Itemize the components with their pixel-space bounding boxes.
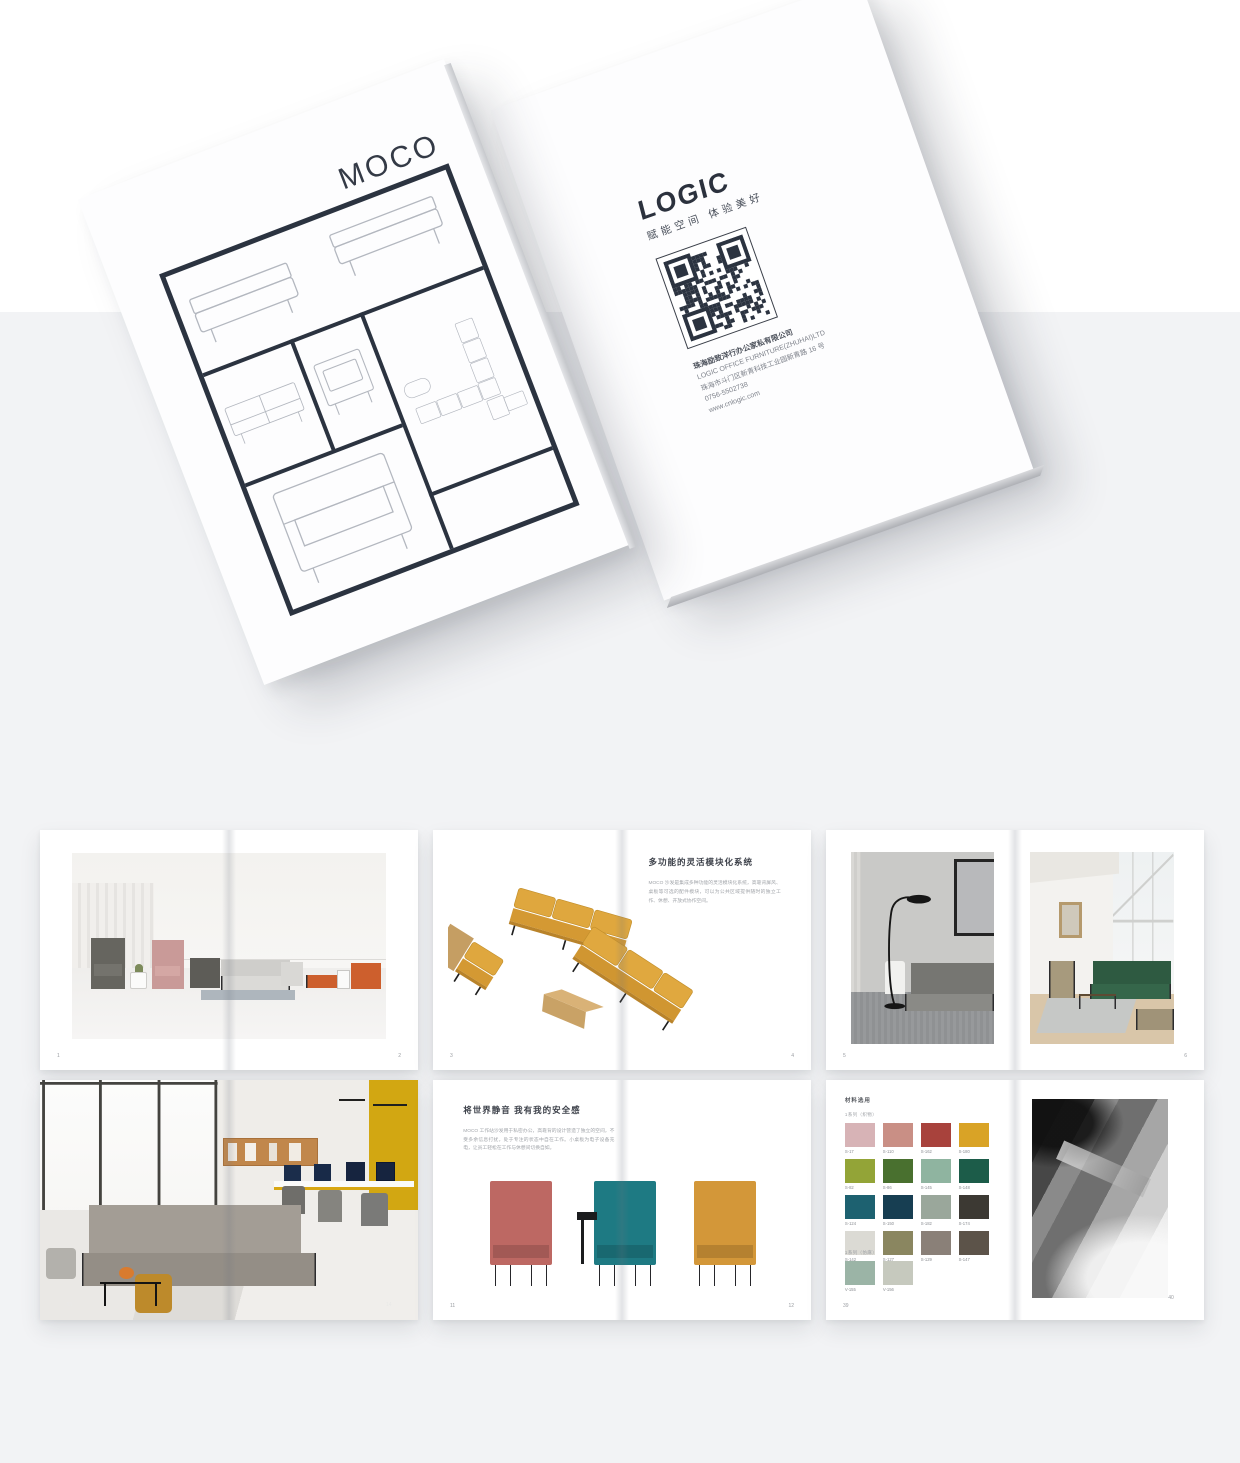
pink-highback-chair (152, 940, 183, 988)
swatch-code: S-145 (921, 1185, 951, 1190)
monitor (346, 1162, 365, 1181)
swatch-group-label: 1系列（仿麻） (845, 1250, 877, 1256)
coffee-table (1079, 994, 1116, 1009)
page-number: 2 (398, 1053, 401, 1059)
charcoal-sofa (190, 958, 220, 988)
office-chair (318, 1190, 343, 1221)
spread-interior-scenes: 5 6 (826, 830, 1204, 1070)
brochure-mockup-hero: LOGIC 赋能空间 体验美好 (0, 0, 1240, 800)
chair-seat (493, 1245, 549, 1258)
spread-modular-system: 多功能的灵活模块化系统 MOCO 沙发是集成多种功能的灵活模块化系统，高靠背屏风… (433, 830, 811, 1070)
small-table (337, 970, 350, 989)
swatch-chip (883, 1261, 913, 1285)
fabric-swatch: S-129 (921, 1231, 951, 1262)
swatch-code: S-162 (921, 1149, 951, 1154)
swatch-chip (845, 1261, 875, 1285)
swatch-chip (883, 1231, 913, 1255)
page-number: 6 (1184, 1053, 1187, 1059)
swatch-code: S-150 (883, 1221, 913, 1226)
materials-header: 材料选用 (845, 1096, 871, 1104)
spread-body-text: MOCO 工作站沙发用于私密办公，高靠背的设计营造了独立的空间，不受多余信息打扰… (463, 1128, 614, 1154)
white-armchair (281, 962, 303, 986)
coffee-table-top (100, 1282, 160, 1285)
fabric-swatch: V-155 (845, 1261, 875, 1292)
craft-hands-photo (1032, 1099, 1168, 1298)
fabric-swatch: S-182 (921, 1195, 951, 1226)
ceiling-rod (339, 1099, 365, 1101)
swatch-chip (883, 1195, 913, 1219)
chair-leg (699, 1265, 701, 1286)
page-gutter (1008, 830, 1022, 1070)
dark-chair-seat (94, 964, 122, 975)
back-cover-content: LOGIC 赋能空间 体验美好 (634, 116, 941, 416)
fabric-swatch: S-162 (921, 1123, 951, 1154)
framed-art (954, 859, 994, 936)
qr-code (663, 234, 770, 341)
fabric-swatch: S-180 (959, 1123, 989, 1154)
beige-bench (1136, 1009, 1173, 1030)
swatch-code: S-82 (845, 1185, 875, 1190)
chair-leg (714, 1265, 716, 1286)
swatch-chip (921, 1123, 951, 1147)
table-leg (104, 1283, 106, 1306)
page-number: 13 (66, 1302, 72, 1308)
swatch-chip (845, 1159, 875, 1183)
page-number: 3 (450, 1053, 453, 1059)
swatch-code: S-147 (959, 1257, 989, 1262)
gray-pouf (46, 1248, 76, 1279)
swatch-grid: S-17 S-110 S-162 S-180 S-82 S-86 S-145 S… (845, 1123, 989, 1262)
swatch-code: V-155 (845, 1287, 875, 1292)
page-number: 11 (450, 1303, 455, 1309)
spread-office-lounge: 13 14 (40, 1080, 418, 1320)
swatch-code: S-129 (921, 1257, 951, 1262)
spread-heading: 多功能的灵活模块化系统 (648, 856, 788, 868)
page-number: 14 (386, 1302, 392, 1308)
page-number: 5 (843, 1053, 846, 1059)
swatch-code: S-110 (883, 1149, 913, 1154)
fabric-swatch: S-124 (845, 1195, 875, 1226)
books (269, 1143, 277, 1162)
page-number: 39 (843, 1303, 849, 1309)
swatch-chip (959, 1159, 989, 1183)
mustard-pouf (135, 1274, 173, 1312)
chair-leg (635, 1265, 637, 1286)
swatch-chip (921, 1231, 951, 1255)
chair-leg (599, 1265, 601, 1286)
page-gutter (615, 1080, 629, 1320)
swatch-group-label: 1系列（织物） (845, 1112, 877, 1118)
swatch-chip (845, 1195, 875, 1219)
gray-sofa-lamp-photo (851, 852, 995, 1044)
swatch-chip (959, 1231, 989, 1255)
books (289, 1143, 301, 1162)
highback-chair-mustard (694, 1181, 756, 1287)
side-table (130, 972, 147, 989)
page-number: 1 (57, 1053, 60, 1059)
chair-seat (697, 1245, 753, 1258)
fabric-swatch: S-110 (883, 1123, 913, 1154)
page-gutter (1008, 1080, 1022, 1320)
books (245, 1143, 256, 1162)
fabric-swatch: S-174 (959, 1195, 989, 1226)
page-gutter (222, 1080, 236, 1320)
green-sofa-attic-photo (1030, 852, 1174, 1044)
swatch-code: S-182 (921, 1221, 951, 1226)
pink-chair-seat (155, 966, 180, 975)
chair-leg (495, 1265, 497, 1286)
orange-loveseat (351, 963, 381, 988)
swatch-code: S-86 (883, 1185, 913, 1190)
chair-leg (650, 1265, 652, 1286)
page-gutter (615, 830, 629, 1070)
swatch-code: S-174 (959, 1221, 989, 1226)
swatch-chip (959, 1195, 989, 1219)
qr-code-box (655, 227, 778, 350)
presentation-canvas: LOGIC 赋能空间 体验美好 (0, 0, 1240, 1463)
fabric-swatch: S-127 (883, 1231, 913, 1262)
monitor (376, 1162, 395, 1181)
swatch-code: S-124 (845, 1221, 875, 1226)
swatch-code: V-156 (883, 1287, 913, 1292)
tablet-table (577, 1212, 597, 1219)
wall-shelf (223, 1138, 318, 1167)
floor-lamp (862, 863, 948, 1032)
highback-chair-rose (490, 1181, 552, 1287)
spread-showroom: 1 2 (40, 830, 418, 1070)
swatch-chip (883, 1123, 913, 1147)
swatch-code: S-17 (845, 1149, 875, 1154)
chair-leg (750, 1265, 752, 1286)
monitor (314, 1164, 331, 1181)
monitor (284, 1165, 301, 1181)
fabric-swatch: S-147 (959, 1231, 989, 1262)
swatch-chip (883, 1159, 913, 1183)
swatch-chip (845, 1123, 875, 1147)
page-number: 40 (1168, 1295, 1174, 1301)
table-leg (155, 1283, 157, 1306)
swatch-chip (959, 1123, 989, 1147)
fabric-swatch: S-148 (959, 1159, 989, 1190)
page-number: 12 (788, 1303, 794, 1309)
swatch-grid-2: V-155 V-156 (845, 1261, 913, 1292)
spread-privacy-chairs: 将世界静音 我有我的安全感 MOCO 工作站沙发用于私密办公，高靠背的设计营造了… (433, 1080, 811, 1320)
cover-line-frame (159, 163, 579, 616)
swatch-code: S-180 (959, 1149, 989, 1154)
yellow-modular-sofa-illustration (448, 868, 713, 1060)
swatch-code: S-148 (959, 1185, 989, 1190)
office-chair (361, 1193, 387, 1227)
fabric-swatch: S-82 (845, 1159, 875, 1190)
page-gutter (222, 830, 236, 1070)
chair-leg (546, 1265, 548, 1286)
chair-leg (531, 1265, 533, 1286)
tablet-table-leg (581, 1220, 583, 1264)
fabric-swatch: S-150 (883, 1195, 913, 1226)
plant (135, 964, 143, 971)
framed-art (1059, 902, 1082, 938)
fabric-swatch: S-17 (845, 1123, 875, 1154)
beige-armchair (1049, 961, 1075, 997)
spread-heading: 将世界静音 我有我的安全感 (463, 1104, 629, 1116)
fabric-swatch: S-86 (883, 1159, 913, 1190)
fabric-swatch: S-145 (921, 1159, 951, 1190)
chair-leg (510, 1265, 512, 1286)
attic-ceiling (1030, 852, 1119, 883)
rug (201, 990, 295, 999)
green-sofa-back (1093, 961, 1171, 986)
swatch-chip (921, 1195, 951, 1219)
spread-materials: 材料选用 1系列（织物） S-17 S-110 S-162 S-180 S-82… (826, 1080, 1204, 1320)
page-number: 4 (791, 1053, 794, 1059)
swatch-chip (921, 1159, 951, 1183)
chair-leg (735, 1265, 737, 1286)
gray-sofa-back (89, 1205, 301, 1258)
spread-grid: 1 2 多功能的灵活模块化系统 MOCO 沙发是集成多种功能的灵活模块化系统，高… (40, 830, 1204, 1320)
fabric-swatch: V-156 (883, 1261, 913, 1292)
fabric-swatch: S-142 (845, 1231, 875, 1262)
ceiling-rod (373, 1104, 407, 1106)
